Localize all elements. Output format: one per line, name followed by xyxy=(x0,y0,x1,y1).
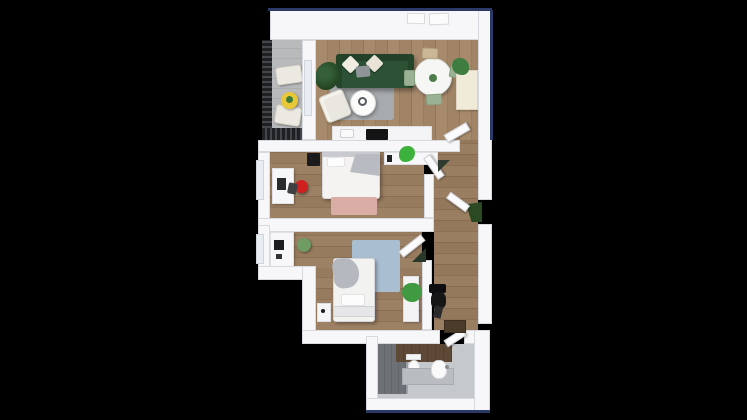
hallway-dark-cabinet xyxy=(444,320,466,333)
wall-bedroom1-hallway xyxy=(424,174,434,218)
exterior-edge-top xyxy=(268,8,492,11)
bedroom2-nightstand-knob xyxy=(321,309,325,313)
bedroom2-desk-laptop xyxy=(274,240,284,250)
dining-chair-sage-bottom xyxy=(426,93,443,105)
bathroom-wood-counter xyxy=(396,344,452,362)
dining-chair-sage-left xyxy=(404,70,415,86)
bedroom2-desk xyxy=(270,232,294,268)
sink-basin xyxy=(431,360,447,379)
exterior-edge-bottom xyxy=(366,410,490,413)
bedroom2-pouf-green xyxy=(297,238,311,252)
coffee-table-decor xyxy=(358,97,367,106)
bedroom1-nightstand xyxy=(307,153,320,166)
bedroom1-dresser-items xyxy=(387,155,392,162)
window-balcony-door xyxy=(304,60,312,116)
kitchen-unit-plant xyxy=(452,58,469,75)
wall-bathroom-right xyxy=(474,330,490,412)
balcony-table-plant xyxy=(286,96,293,103)
bedroom1-bed-pillow xyxy=(327,157,345,168)
bedroom2-bed-footboard xyxy=(333,306,375,317)
kitchen-tall-unit xyxy=(456,70,478,110)
sofa-pillow-gray xyxy=(355,65,370,77)
bedroom1-rug-pink xyxy=(331,197,377,215)
kitchen-cooktop xyxy=(366,129,388,140)
balcony-lounge-chair-1 xyxy=(275,64,303,85)
bedroom2-shelf-plant xyxy=(402,283,421,302)
bedroom1-desk-laptop xyxy=(277,178,286,190)
window-bedroom1 xyxy=(256,160,264,200)
wall-bedroom2-hallway xyxy=(422,260,432,330)
wall-tray-2 xyxy=(429,13,449,26)
balcony-railing-left xyxy=(262,40,272,136)
wall-tray-1 xyxy=(407,13,425,25)
sink-faucet xyxy=(445,365,449,369)
dining-chair-beige xyxy=(422,47,439,59)
bedroom2-bed-pillow xyxy=(341,294,365,306)
floorplan-scene xyxy=(0,0,747,420)
exterior-edge-right xyxy=(490,10,493,140)
bedroom2-desk-item xyxy=(276,254,282,259)
window-bedroom2 xyxy=(256,234,264,264)
wall-right-exterior-lower xyxy=(478,224,492,324)
dining-table-plant xyxy=(429,74,437,82)
wall-top-exterior xyxy=(270,10,492,40)
wall-bedroom1-bedroom2 xyxy=(258,218,434,232)
wall-living-bedroom1 xyxy=(258,140,460,152)
kitchen-sink xyxy=(340,129,354,138)
